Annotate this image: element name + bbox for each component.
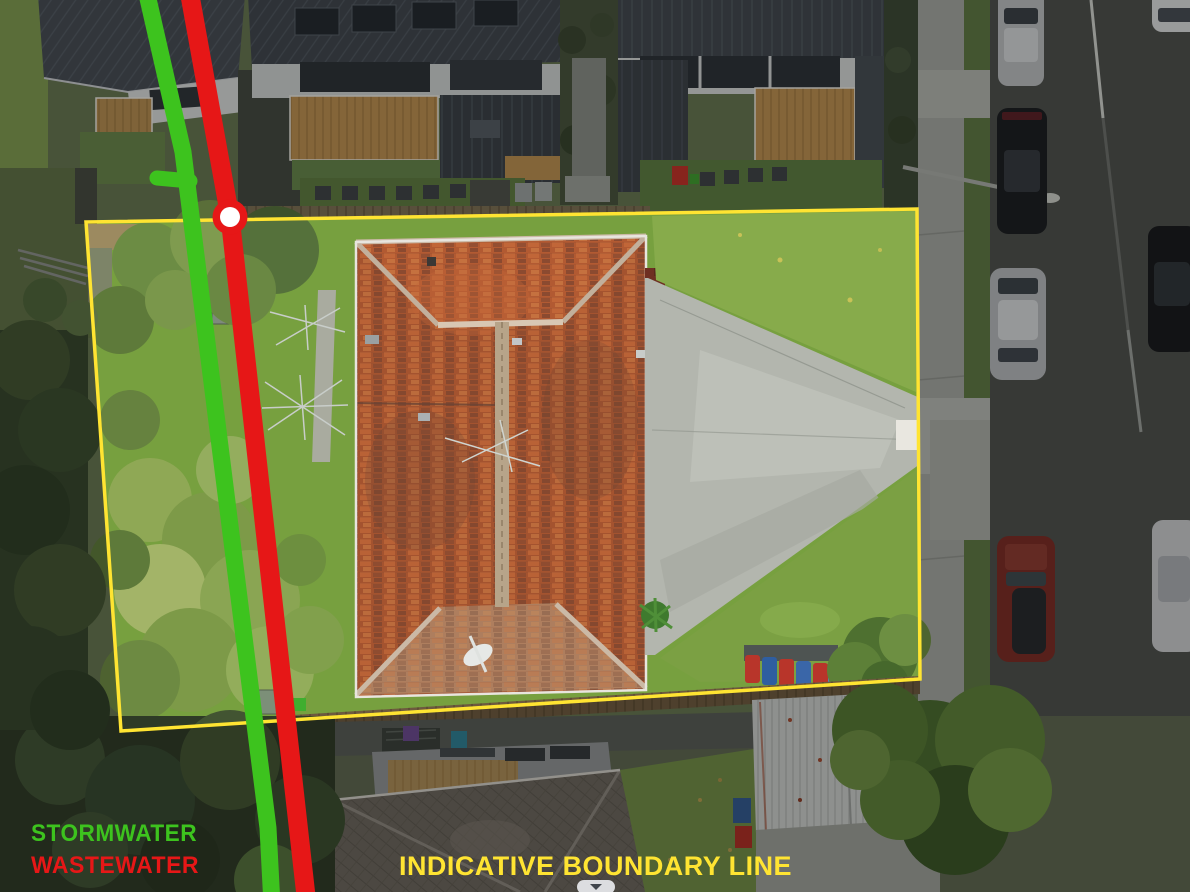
wastewater-label: WASTEWATER — [31, 852, 199, 879]
junction-marker — [213, 200, 248, 235]
main-house-roof — [356, 236, 648, 697]
junction-marker-center — [220, 207, 240, 227]
aerial-photo-viewport: STORMWATER WASTEWATER INDICATIVE BOUNDAR… — [0, 0, 1190, 892]
stormwater-label: STORMWATER — [31, 820, 197, 847]
gate — [896, 420, 918, 450]
boundary-label: INDICATIVE BOUNDARY LINE — [399, 851, 792, 881]
green-bin — [293, 698, 306, 711]
collapse-button[interactable] — [577, 880, 615, 892]
property-interior — [0, 200, 931, 731]
